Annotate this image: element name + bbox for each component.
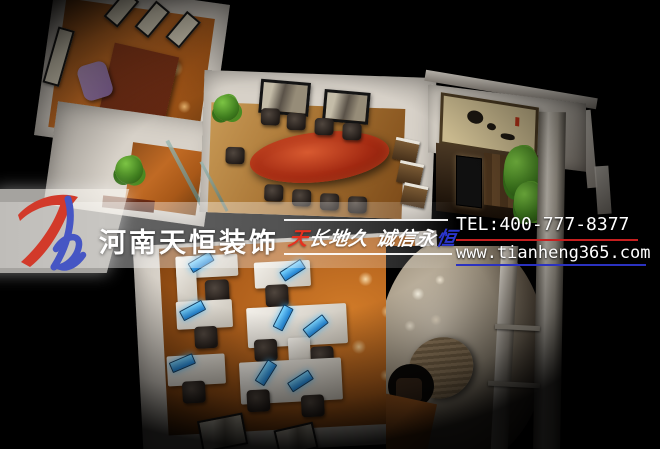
meeting-chair bbox=[264, 184, 284, 202]
slogan-divider-bottom bbox=[284, 253, 452, 255]
magazine-rack bbox=[392, 137, 420, 164]
meeting-chair bbox=[314, 118, 334, 136]
office-chair bbox=[301, 394, 325, 417]
office-chair bbox=[265, 284, 289, 307]
slogan: 天长地久 诚信永恒 bbox=[287, 224, 459, 251]
office-chair bbox=[254, 339, 278, 362]
promo-poster: 河南天恒装饰 天长地久 诚信永恒 TEL:400-777-8377 www.ti… bbox=[0, 0, 660, 449]
website-underline bbox=[456, 264, 646, 266]
phone-number: TEL:400-777-8377 bbox=[456, 214, 629, 235]
office-chair bbox=[246, 389, 270, 412]
meeting-chair bbox=[287, 113, 307, 131]
slogan-white-text: 长地久 诚信永 bbox=[307, 228, 439, 250]
slogan-divider-top bbox=[284, 219, 448, 221]
display-cabinet bbox=[456, 155, 482, 208]
company-name: 河南天恒装饰 bbox=[99, 221, 279, 260]
edge-pillar bbox=[594, 166, 611, 215]
website-url[interactable]: www.tianheng365.com bbox=[456, 243, 650, 263]
slogan-blue-char: 恒 bbox=[434, 228, 458, 250]
meeting-room bbox=[200, 70, 437, 220]
meeting-chair bbox=[261, 108, 281, 126]
phone-underline bbox=[456, 239, 638, 241]
meeting-chair bbox=[342, 123, 362, 141]
office-chair bbox=[182, 381, 206, 404]
meeting-chair bbox=[225, 147, 245, 165]
office-chair bbox=[194, 326, 218, 349]
brand-logo bbox=[12, 189, 100, 271]
